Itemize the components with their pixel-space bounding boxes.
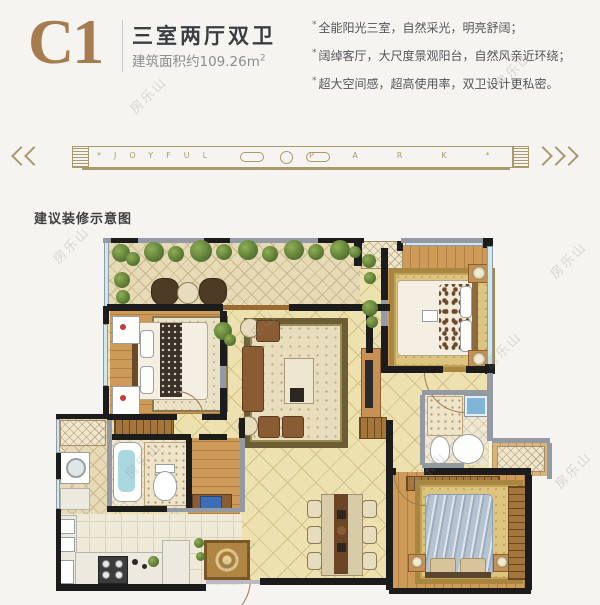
pillow [140,330,154,358]
dining-chair [307,526,322,544]
plan-area: 建筑面积约109.26m2 [132,50,266,70]
header-divider [122,20,123,72]
feature-list: *全能阳光三室，自然采光，明亮舒阔； *阔绰客厅，大尺度景观阳台，自然风亲近环绕… [312,13,571,97]
vanity [112,386,140,416]
flower-decor [120,395,126,401]
ensuite-basin [452,434,484,464]
lamp-icon [411,556,423,568]
wall [56,509,61,585]
banner-left-text: *JOYFUL [97,151,220,160]
wall [103,238,111,243]
wall [206,580,260,584]
wall [420,395,425,465]
plant [194,538,204,548]
wall [223,305,289,310]
fridge [59,560,74,584]
plan-code: C1 [28,10,102,74]
bedroom3-headboard [425,572,491,578]
table-decor [337,543,346,552]
plant [364,272,376,284]
wall [386,420,393,470]
wall [56,414,108,419]
plant [362,300,378,316]
wall [381,366,443,373]
wall [56,453,61,479]
plant [168,246,184,262]
dining-chair [362,526,377,544]
wall [381,248,388,300]
wall [525,475,532,590]
armchair [258,416,280,438]
plant [126,252,140,266]
stove [98,556,128,584]
watermark: 房乐山 [125,72,170,117]
plant [349,246,361,258]
plant [224,334,236,346]
decorative-banner: *JOYFUL PARK* [8,143,592,171]
kitchen-sink [60,519,75,534]
plant [284,240,304,260]
wall [289,304,357,311]
wall [186,438,192,510]
banner-ornament-icon [240,152,264,162]
wall [104,241,109,307]
banner-endcap-icon [512,146,529,168]
utility-shelf [60,488,90,510]
wall [56,584,206,591]
flower-decor [120,324,126,330]
plan-title: 三室两厅双卫 [132,20,276,50]
banner-shadow-line [82,168,510,170]
area-superscript: 2 [260,54,266,64]
wall [202,414,227,420]
wall [240,438,245,512]
banner-right-text: PARK* [309,151,529,160]
plant [238,240,258,260]
wall [386,475,393,590]
wall [107,506,167,512]
kitchen-item [142,564,147,569]
kitchen-item [132,559,138,565]
table-decor [290,388,304,402]
bedroom2-bed-runner [160,323,182,397]
banner-endcap-icon [72,146,89,168]
wall [492,438,550,443]
wall [220,366,226,388]
wall [389,588,531,594]
feature-line: *超大空间感，超高使用率，双卫设计更私密。 [312,69,571,97]
plant [366,316,378,328]
wall [547,443,552,479]
wall [107,304,223,311]
feature-line: *全能阳光三室，自然采光，明亮舒阔； [312,13,571,41]
pillow [460,286,472,318]
flyer-page: C1 三室两厅双卫 建筑面积约109.26m2 *全能阳光三室，自然采光，明亮舒… [0,0,600,605]
utility-hatch-box [60,420,106,446]
lamp-icon [496,556,508,568]
banner-ornament-icon [306,152,330,162]
wall [260,578,391,585]
table-decor [337,510,346,519]
feature-line: *阔绰客厅，大尺度景观阳台，自然风亲近环绕； [312,41,571,69]
terrace-chair [199,278,227,306]
wall [381,326,388,373]
plant [216,244,232,260]
armchair [282,416,304,438]
terrace-table [177,282,199,304]
wall [103,386,109,416]
plant [116,290,130,304]
wall [199,434,227,440]
hall-sideboard [359,417,387,439]
watermark: 房乐山 [550,447,595,492]
plant [196,552,205,561]
wall [167,508,240,512]
chevron-right-icon [559,146,579,166]
plan-caption: 建议装修示意图 [34,208,132,227]
washer-door-icon [66,458,86,478]
wall [103,324,108,386]
chevron-left-icon [24,146,44,166]
lamp-icon [472,266,486,280]
plant [308,244,324,260]
plant [148,556,159,567]
wall [405,242,483,246]
wall [239,418,245,438]
wall [422,390,492,395]
wall [487,373,493,441]
floor-plan [56,238,556,604]
toilet [153,471,177,501]
wall [107,414,177,420]
wall [107,420,112,506]
dining-chair [362,500,377,518]
sofa [242,346,264,412]
banner-ornament-icon [280,151,293,164]
terrace-chair [151,278,179,306]
plant [144,242,164,262]
dining-chair [307,500,322,518]
pillow [140,366,154,394]
vanity [112,316,140,344]
wall [220,388,227,416]
table-decor [337,526,346,535]
kitchen-sink [60,537,75,552]
plant [330,240,350,260]
wall [56,419,60,453]
dining-chair [307,552,322,570]
plant [362,254,376,268]
dining-chair [362,552,377,570]
wall [56,479,60,509]
plant [190,240,212,262]
bed-decor-cards [422,310,438,322]
tv [365,360,373,408]
plant [262,246,278,262]
plant [114,272,130,288]
